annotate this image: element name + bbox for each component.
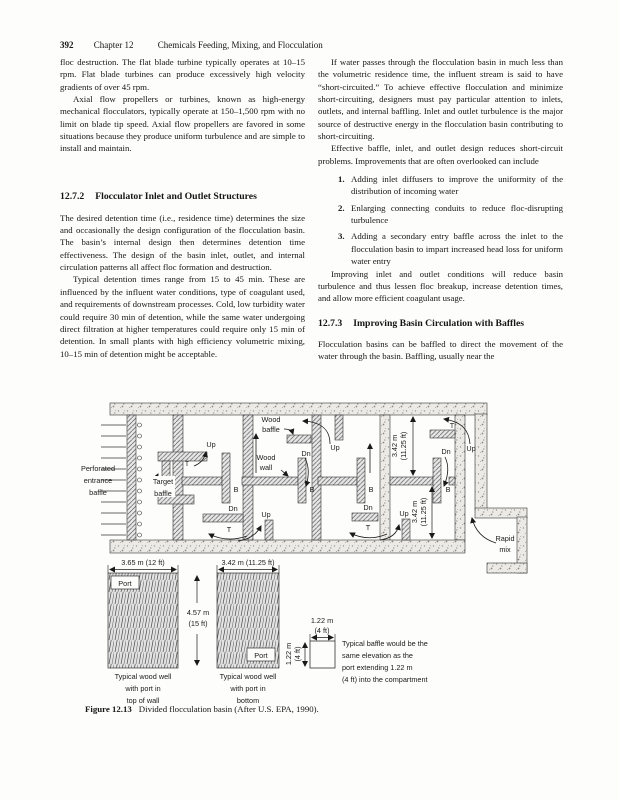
list-text: Enlarging connecting conduits to reduce …: [351, 202, 563, 227]
list-number: 3.: [338, 230, 347, 267]
running-header: 392 Chapter 12 Chemicals Feeding, Mixing…: [60, 40, 323, 50]
text-columns: floc destruction. The flat blade turbine…: [60, 56, 563, 362]
vertical-baffle: [357, 458, 365, 503]
list-number: 1.: [338, 173, 347, 198]
wood-wall-horizontal: [449, 477, 455, 485]
well-right-caption: with port in: [229, 684, 265, 693]
paragraph: floc destruction. The flat blade turbine…: [60, 56, 305, 93]
wood-wall-horizontal: [318, 477, 357, 485]
page-number: 392: [60, 40, 74, 50]
t-label: T: [450, 421, 455, 430]
perforated-baffle-label: entrance: [84, 476, 112, 485]
rapid-mix-arrow: [472, 518, 496, 543]
chapter-label: Chapter 12: [94, 40, 134, 50]
up-label: Up: [206, 440, 215, 449]
center-concrete-wall: [380, 415, 390, 540]
baffle-square: [310, 641, 335, 668]
numbered-list: 1. Adding inlet diffusers to improve the…: [318, 173, 563, 267]
paragraph: Typical detention times range from 15 to…: [60, 273, 305, 359]
top-hanging-baffle: [335, 415, 343, 440]
paragraph: If water passes through the flocculation…: [318, 56, 563, 142]
chapter-title: Chemicals Feeding, Mixing, and Flocculat…: [158, 40, 323, 50]
right-column: If water passes through the flocculation…: [318, 56, 563, 362]
left-column: floc destruction. The flat blade turbine…: [60, 56, 305, 362]
figure-12-13: Perforated entrance baffle Target baffle…: [0, 400, 619, 706]
wood-wall-horizontal: [242, 477, 298, 485]
section-heading-1272: 12.7.2Flocculator Inlet and Outlet Struc…: [60, 191, 305, 203]
wood-baffle-label: baffle: [262, 425, 280, 434]
list-number: 2.: [338, 202, 347, 227]
paragraph: Effective baffle, inlet, and outlet desi…: [318, 142, 563, 167]
dn-label: Dn: [301, 449, 310, 458]
dim-457-label: (15 ft): [188, 619, 207, 628]
figure-caption: Figure 12.13Divided flocculation basin (…: [85, 704, 319, 714]
top-wall: [110, 403, 487, 415]
b-label: B: [369, 485, 374, 494]
bottom-wall: [110, 540, 465, 553]
down-arrow: [444, 457, 448, 486]
dim-457-label: 4.57 m: [187, 608, 209, 617]
b-label: B: [310, 485, 315, 494]
figure-caption-text: Divided flocculation basin (After U.S. E…: [139, 704, 319, 714]
dn-label: Dn: [441, 447, 450, 456]
target-baffle-label: baffle: [154, 489, 172, 498]
wood-wall-horizontal: [390, 477, 433, 485]
bottom-baffle-vertical: [265, 520, 273, 540]
list-item: 1. Adding inlet diffusers to improve the…: [318, 173, 563, 198]
book-page: 392 Chapter 12 Chemicals Feeding, Mixing…: [0, 0, 619, 800]
well-right-caption: Typical wood well: [220, 672, 277, 681]
paragraph: The desired detention time (i.e., reside…: [60, 212, 305, 274]
list-text: Adding a secondary entry baffle across t…: [351, 230, 563, 267]
perforated-entrance-baffle: [127, 415, 136, 540]
dim-342-lower: (11.25 ft): [419, 498, 428, 527]
section-title: Improving Basin Circulation with Baffles: [353, 318, 524, 329]
perforated-baffle-label: baffle: [89, 488, 107, 497]
up-label: Up: [399, 509, 408, 518]
t-label: T: [227, 525, 232, 534]
baffle-note: port extending 1.22 m: [342, 663, 413, 672]
rapid-mix-bottom-wall: [487, 563, 527, 573]
list-item: 2. Enlarging connecting conduits to redu…: [318, 202, 563, 227]
port-label: Port: [254, 651, 267, 660]
vertical-baffle: [433, 458, 441, 503]
wood-wall-leader: [281, 470, 288, 476]
t-label: T: [185, 459, 190, 468]
list-text: Adding inlet diffusers to improve the un…: [351, 173, 563, 198]
wood-wall-label: wall: [259, 463, 273, 472]
wood-wall-label: Wood: [257, 453, 276, 462]
figure-caption-label: Figure 12.13: [85, 704, 132, 714]
dim-342-upper: (11.25 ft): [399, 432, 408, 461]
dim-122-left: (4 ft): [293, 647, 302, 662]
list-item: 3. Adding a secondary entry baffle acros…: [318, 230, 563, 267]
vertical-baffle: [222, 453, 230, 503]
paragraph: Flocculation basins can be baffled to di…: [318, 338, 563, 363]
section-number: 12.7.2: [60, 191, 84, 202]
wood-baffle: [287, 435, 311, 443]
vertical-baffle: [298, 458, 306, 503]
flocculation-basin-diagram: Perforated entrance baffle Target baffle…: [0, 400, 619, 706]
dim-342-label: 3.42 m (11.25 ft): [222, 558, 275, 567]
section-title: Flocculator Inlet and Outlet Structures: [95, 191, 257, 202]
wood-wall-horizontal: [182, 477, 222, 485]
rapid-mix-label: Rapid: [495, 534, 514, 543]
section-heading-1273: 12.7.3Improving Basin Circulation with B…: [318, 318, 563, 330]
wood-baffle-leader: [284, 429, 293, 434]
dim-342-upper: 3.42 m: [390, 435, 399, 457]
b-label: B: [446, 485, 451, 494]
inner-right-wall: [455, 415, 465, 540]
outer-right-wall: [475, 414, 487, 509]
dim-122-top: (4 ft): [315, 626, 330, 635]
up-label: Up: [261, 510, 270, 519]
port-label: Port: [118, 579, 131, 588]
dim-122-left: 1.22 m: [284, 643, 293, 665]
baffle-note: (4 ft) into the compartment: [342, 675, 428, 684]
bottom-baffle-horizontal: [203, 514, 243, 522]
dn-label: Dn: [363, 503, 372, 512]
well-left-caption: Typical wood well: [115, 672, 172, 681]
dim-122-top: 1.22 m: [311, 616, 333, 625]
well-left-caption: with port in: [124, 684, 160, 693]
target-baffle-label: Target: [153, 477, 173, 486]
bottom-baffle-vertical: [402, 519, 410, 540]
rapid-mix-top-wall: [475, 508, 527, 518]
paragraph: Axial flow propellers or turbines, known…: [60, 93, 305, 155]
paragraph: Improving inlet and outlet conditions wi…: [318, 268, 563, 305]
rapid-mix-label: mix: [499, 545, 511, 554]
dn-label: Dn: [228, 504, 237, 513]
detail-section: Port 3.65 m (12 ft) Port 3.42 m (11.25 f…: [108, 558, 428, 705]
wood-baffle-label: Wood: [262, 415, 281, 424]
sweep-left-arrow: [209, 534, 247, 539]
dim-365-label: 3.65 m (12 ft): [121, 558, 164, 567]
up-label: Up: [466, 444, 475, 453]
dim-342-lower: 3.42 m: [410, 501, 419, 523]
top-right-baffle: [430, 430, 455, 438]
perforated-baffle-label: Perforated: [81, 464, 115, 473]
target-baffle-top: [158, 452, 207, 461]
baffle-note: same elevation as the: [342, 651, 413, 660]
bottom-baffle-horizontal: [352, 513, 378, 521]
section-number: 12.7.3: [318, 318, 342, 329]
t-label: T: [366, 523, 371, 532]
up-label: Up: [330, 443, 339, 452]
baffle-note: Typical baffle would be the: [342, 639, 428, 648]
b-label: B: [234, 485, 239, 494]
